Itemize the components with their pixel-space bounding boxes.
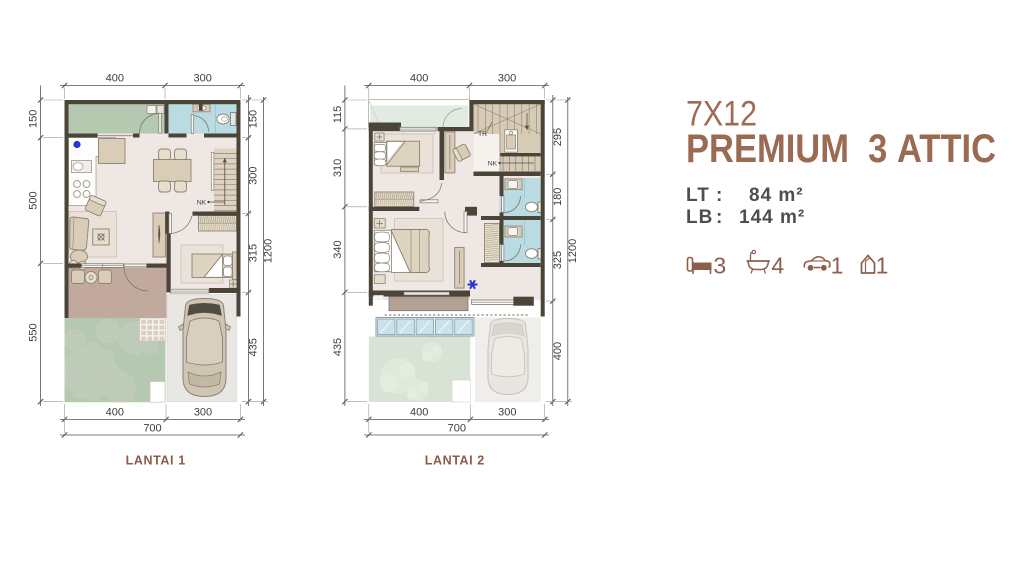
svg-text:310: 310	[332, 159, 344, 177]
svg-text:LANTAI 2: LANTAI 2	[425, 454, 485, 468]
svg-text:435: 435	[248, 338, 260, 356]
svg-text:144 m²: 144 m²	[739, 207, 805, 228]
svg-text:400: 400	[410, 73, 428, 85]
svg-text:LB: LB	[686, 207, 713, 228]
svg-text:LANTAI 1: LANTAI 1	[126, 454, 186, 468]
svg-text:NK: NK	[197, 200, 207, 207]
svg-text:435: 435	[332, 338, 344, 356]
svg-text:TR: TR	[478, 131, 487, 138]
svg-text:340: 340	[332, 240, 344, 258]
svg-text:4: 4	[771, 253, 784, 279]
svg-text:300: 300	[248, 167, 260, 185]
svg-text:700: 700	[448, 423, 466, 435]
svg-text:300: 300	[498, 407, 516, 419]
svg-text:150: 150	[28, 110, 40, 128]
svg-text:295: 295	[552, 128, 564, 146]
svg-text:315: 315	[248, 244, 260, 262]
svg-text:150: 150	[248, 110, 260, 128]
svg-text:180: 180	[552, 188, 564, 206]
svg-text:NK: NK	[488, 161, 498, 168]
svg-text:LT: LT	[686, 185, 710, 206]
svg-text:3: 3	[713, 253, 726, 279]
svg-text:400: 400	[410, 407, 428, 419]
svg-text:300: 300	[194, 73, 212, 85]
svg-text:700: 700	[143, 423, 161, 435]
svg-text:115: 115	[332, 106, 344, 124]
svg-text:1: 1	[831, 253, 844, 279]
svg-text:1: 1	[876, 253, 889, 279]
svg-text:400: 400	[106, 407, 124, 419]
svg-text:300: 300	[498, 73, 516, 85]
svg-text:1200: 1200	[263, 239, 275, 263]
svg-text:PREMIUM 3 ATTIC: PREMIUM 3 ATTIC	[686, 127, 996, 171]
svg-text:1200: 1200	[567, 239, 579, 263]
svg-text::: :	[716, 185, 722, 206]
svg-text:84 m²: 84 m²	[749, 185, 804, 206]
svg-text::: :	[716, 207, 722, 228]
svg-text:550: 550	[28, 323, 40, 341]
svg-text:325: 325	[552, 251, 564, 269]
svg-text:400: 400	[106, 73, 124, 85]
svg-text:500: 500	[28, 191, 40, 209]
svg-text:400: 400	[552, 342, 564, 360]
svg-text:300: 300	[194, 407, 212, 419]
